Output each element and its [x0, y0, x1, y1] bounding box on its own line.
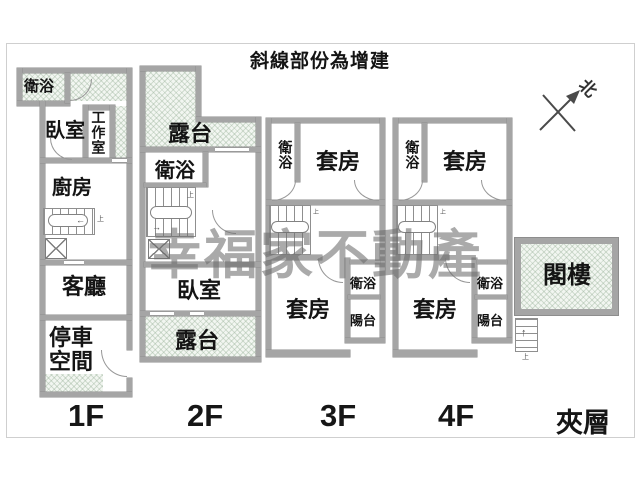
wall — [140, 357, 261, 362]
compass-icon: 北 — [530, 70, 606, 138]
wall — [266, 350, 350, 357]
window-mark — [190, 311, 204, 316]
room-label-attic: 閣樓 — [543, 263, 591, 289]
room-label-workroom: 工作室 — [90, 110, 105, 155]
wall — [196, 66, 201, 122]
wall — [127, 68, 132, 350]
window-mark — [64, 260, 84, 265]
room-label-kitchen: 廚房 — [52, 177, 92, 199]
stair-direction-arrow: ← — [76, 216, 85, 225]
room-label-bath: 衛浴 — [155, 160, 195, 182]
wall — [475, 295, 507, 299]
floor-label-3f: 3F — [320, 398, 356, 434]
room-label-suite-bottom: 套房 — [286, 298, 330, 322]
shaft-icon — [45, 238, 67, 259]
room-label-suite-bottom: 套房 — [413, 298, 457, 322]
wall — [40, 260, 132, 265]
stairs-up-label: 上 — [187, 192, 194, 199]
wall — [393, 118, 512, 123]
room-label-balcony: 陽台 — [350, 314, 376, 328]
wall — [472, 338, 512, 343]
wall — [17, 68, 132, 73]
stair-direction-arrow: ↑ — [521, 328, 527, 339]
window-mark — [150, 311, 174, 316]
hatched-addition-area — [115, 106, 127, 163]
hatched-addition-area — [45, 374, 103, 392]
wall — [393, 350, 477, 357]
window-mark — [215, 147, 249, 152]
wall — [345, 338, 385, 343]
room-label-suite-top: 套房 — [316, 150, 360, 174]
room-label-parking: 停車空間 — [49, 326, 99, 374]
room-label-balcony: 陽台 — [477, 314, 503, 328]
stairs-icon — [515, 318, 538, 352]
room-label-living: 客廳 — [62, 275, 106, 299]
wall — [140, 66, 201, 71]
floor-label-1f: 1F — [68, 398, 104, 434]
stairs-up-label: 上 — [97, 216, 104, 223]
room-label-bath-top: 衛浴 — [277, 140, 292, 170]
room-label-terrace-top: 露台 — [168, 122, 212, 146]
wall — [348, 295, 380, 299]
room-label-suite-top: 套房 — [443, 150, 487, 174]
wall — [40, 315, 132, 320]
wall — [203, 152, 208, 187]
stairs-up-label: 上 — [522, 354, 529, 361]
wall — [422, 123, 427, 182]
compass-north-label: 北 — [575, 76, 600, 101]
floor-label-mezzanine: 夾層 — [556, 401, 610, 440]
window-mark — [112, 158, 127, 163]
room-label-bedroom: 臥室 — [45, 120, 85, 142]
room-label-bath: 衛浴 — [24, 79, 54, 96]
wall — [295, 123, 300, 182]
wall — [40, 392, 132, 397]
wall — [140, 66, 145, 362]
room-label-terrace-bottom: 露台 — [175, 329, 219, 353]
floorplan-canvas: 斜線部份為增建 北 ← 上 衛浴 — [0, 0, 640, 480]
room-label-bath-top: 衛浴 — [404, 140, 419, 170]
wall — [507, 118, 512, 343]
floor-label-2f: 2F — [187, 398, 223, 434]
wall — [110, 105, 115, 162]
watermark: 幸福家不動產 — [148, 213, 484, 289]
wall — [266, 118, 385, 123]
floor-label-4f: 4F — [438, 398, 474, 434]
